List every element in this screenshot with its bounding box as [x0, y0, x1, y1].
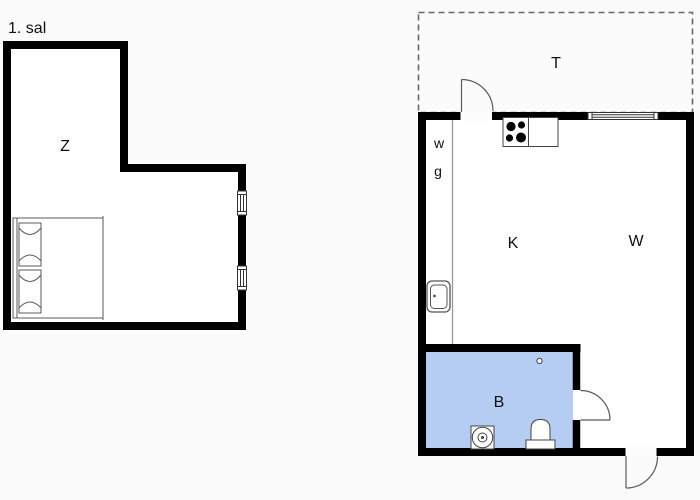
window-icon	[588, 113, 658, 120]
floor-drain-icon	[537, 358, 542, 363]
window-icon	[238, 191, 247, 215]
ground-floor-plan: T w g	[418, 13, 693, 489]
upper-floor-walls	[7, 45, 242, 326]
room-label-bedroom: Z	[60, 138, 70, 155]
entry-door-icon	[626, 447, 658, 488]
upper-floor-plan: 1. sal	[7, 20, 247, 326]
floorplan-drawing: 1. sal	[0, 0, 700, 500]
room-label-bathroom: B	[494, 394, 505, 411]
room-label-wardrobe-w: w	[433, 135, 445, 151]
room-label-wardrobe-g: g	[434, 163, 442, 179]
window-icon	[238, 266, 247, 290]
room-label-kitchen: K	[508, 235, 519, 252]
washing-machine-icon	[471, 426, 494, 449]
room-label-terrace: T	[551, 55, 561, 72]
stove-icon	[503, 118, 558, 147]
floorplan-page: 1. sal	[0, 0, 700, 500]
terrace-door-icon	[461, 80, 494, 122]
kitchen-sink-icon	[427, 281, 450, 312]
room-label-living-room: W	[628, 233, 644, 250]
floor-title: 1. sal	[8, 20, 46, 37]
